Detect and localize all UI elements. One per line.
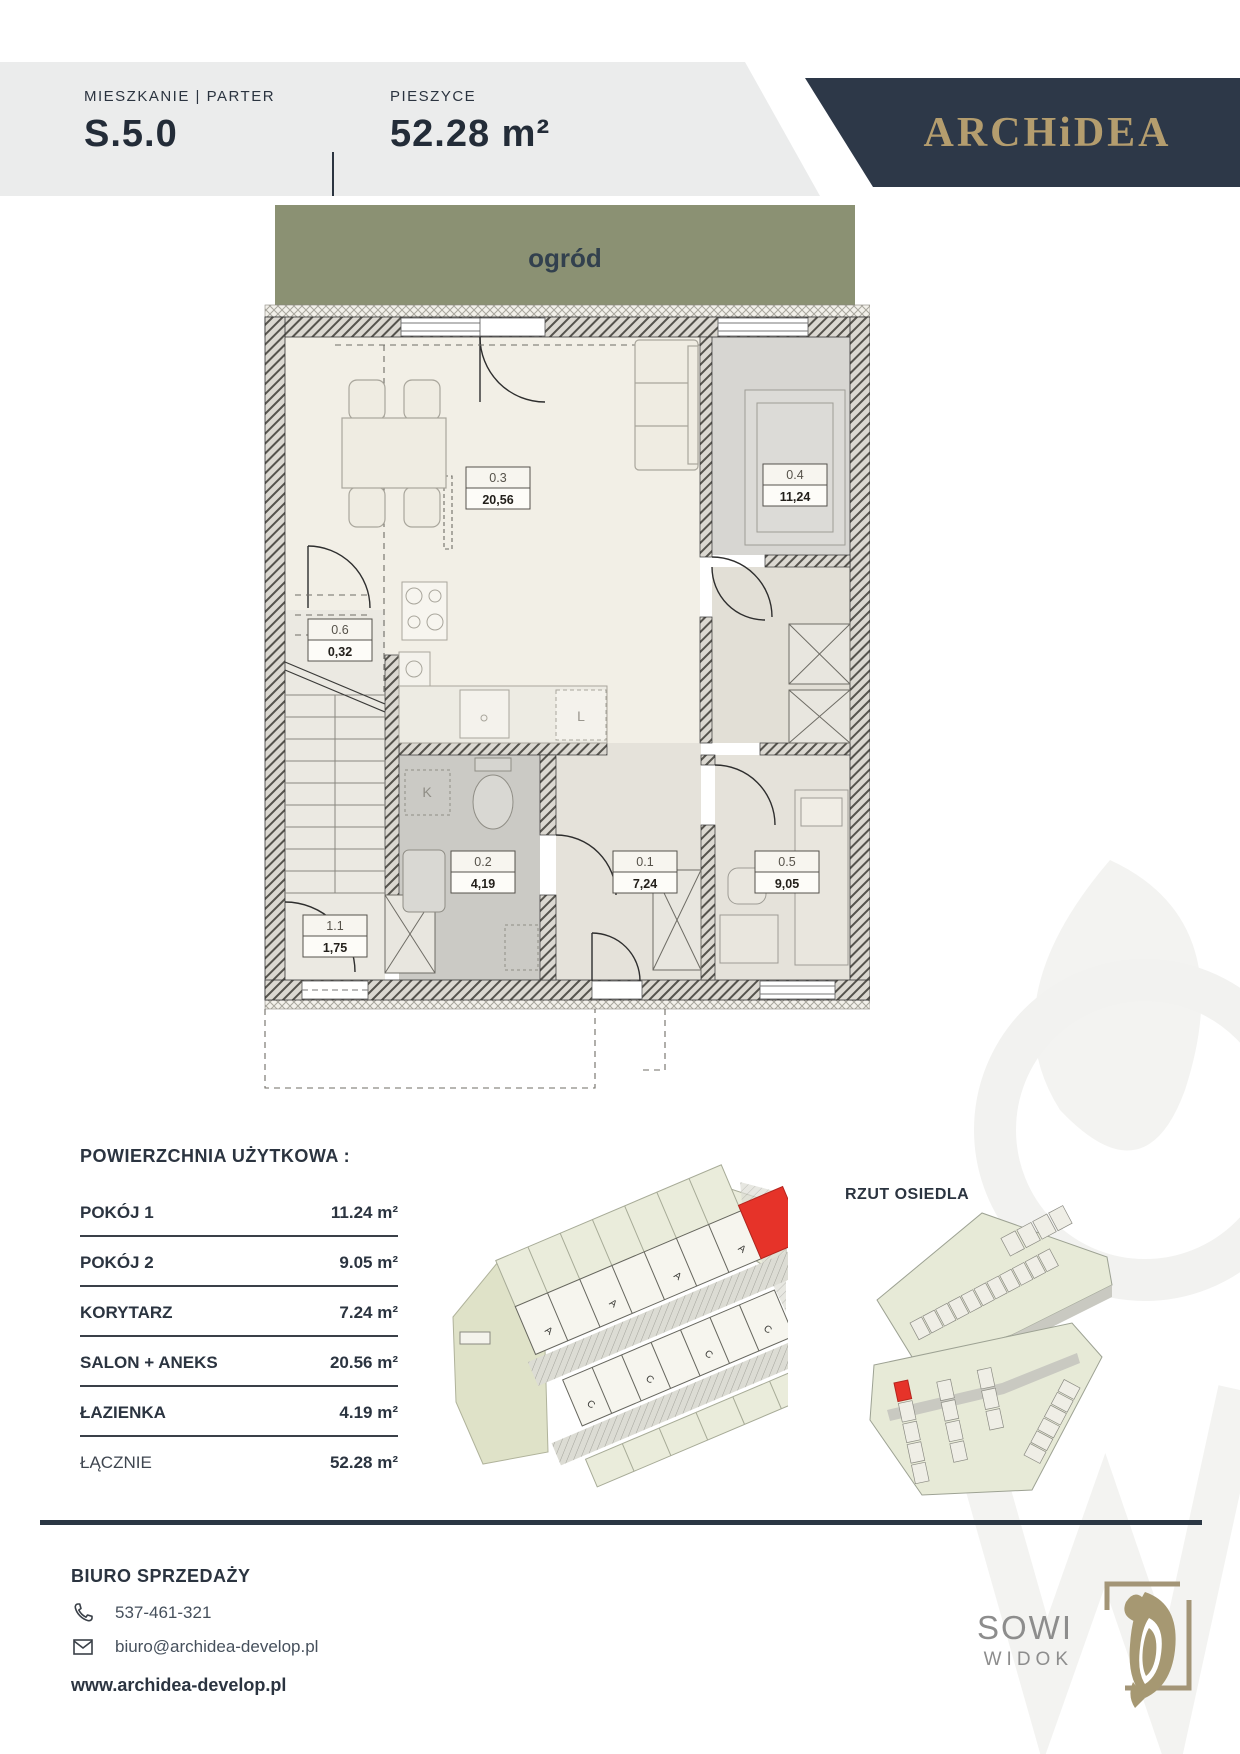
website-url[interactable]: www.archidea-develop.pl <box>71 1675 318 1696</box>
floor-plan: ogród <box>250 190 870 1100</box>
email-address[interactable]: biuro@archidea-develop.pl <box>115 1637 318 1657</box>
table-row: SALON + ANEKS 20.56 m² <box>80 1337 398 1387</box>
table-total-row: ŁĄCZNIE 52.28 m² <box>80 1437 398 1485</box>
washer-label: K <box>422 784 432 800</box>
svg-text:11,24: 11,24 <box>780 490 811 504</box>
table-row: ŁAZIENKA 4.19 m² <box>80 1387 398 1437</box>
table-row: POKÓJ 1 11.24 m² <box>80 1187 398 1237</box>
svg-text:0.6: 0.6 <box>331 623 348 637</box>
svg-text:0.2: 0.2 <box>474 855 491 869</box>
svg-text:0,32: 0,32 <box>328 645 352 659</box>
svg-text:9,05: 9,05 <box>775 877 799 891</box>
phone-number[interactable]: 537-461-321 <box>115 1603 211 1623</box>
bedroom2-window <box>760 981 835 999</box>
svg-text:0.5: 0.5 <box>778 855 795 869</box>
unit-number: S.5.0 <box>84 113 332 156</box>
sales-office-title: BIURO SPRZEDAŻY <box>71 1566 318 1587</box>
sofa <box>635 340 698 470</box>
svg-text:4,19: 4,19 <box>471 877 495 891</box>
svg-text:20,56: 20,56 <box>482 493 513 507</box>
brand-logo: ARCHiDEA <box>873 109 1171 157</box>
usable-area-table: POWIERZCHNIA UŻYTKOWA : POKÓJ 1 11.24 m²… <box>80 1146 398 1485</box>
bedroom1-window <box>718 318 808 336</box>
svg-text:1.1: 1.1 <box>326 919 343 933</box>
unit-category: MIESZKANIE | PARTER <box>84 88 332 105</box>
header-band: MIESZKANIE | PARTER S.5.0 PIESZYCE 52.28… <box>0 62 822 196</box>
logo-line1: SOWI <box>928 1609 1073 1647</box>
svg-text:0.4: 0.4 <box>786 468 803 482</box>
table-row: POKÓJ 2 9.05 m² <box>80 1237 398 1287</box>
svg-text:0.1: 0.1 <box>636 855 653 869</box>
city-label: PIESZYCE <box>390 88 550 105</box>
fridge-label: L <box>577 708 585 724</box>
estate-plan-title: RZUT OSIEDLA <box>845 1186 969 1204</box>
brand-band: ARCHiDEA <box>805 78 1240 187</box>
svg-text:0.3: 0.3 <box>489 471 506 485</box>
svg-text:7,24: 7,24 <box>633 877 657 891</box>
table-row: KORYTARZ 7.24 m² <box>80 1287 398 1337</box>
table-title: POWIERZCHNIA UŻYTKOWA : <box>80 1146 398 1167</box>
garden-door <box>480 318 545 336</box>
entrance-door <box>592 981 642 999</box>
total-area: 52.28 m² <box>390 113 550 156</box>
owl-icon <box>1085 1570 1205 1710</box>
site-plan-local: A A A A C C C C <box>448 1162 788 1492</box>
sales-office-block: BIURO SPRZEDAŻY 537-461-321 biuro@archid… <box>71 1566 318 1696</box>
email-icon <box>71 1635 95 1659</box>
svg-text:1,75: 1,75 <box>323 941 347 955</box>
footer-divider <box>40 1520 1202 1525</box>
site-plan-estate <box>862 1205 1127 1500</box>
logo-line2: WIDOK <box>928 1649 1073 1671</box>
garden-label: ogród <box>528 243 602 273</box>
sowi-widok-logo: SOWI WIDOK <box>928 1560 1228 1720</box>
phone-icon <box>71 1601 95 1625</box>
